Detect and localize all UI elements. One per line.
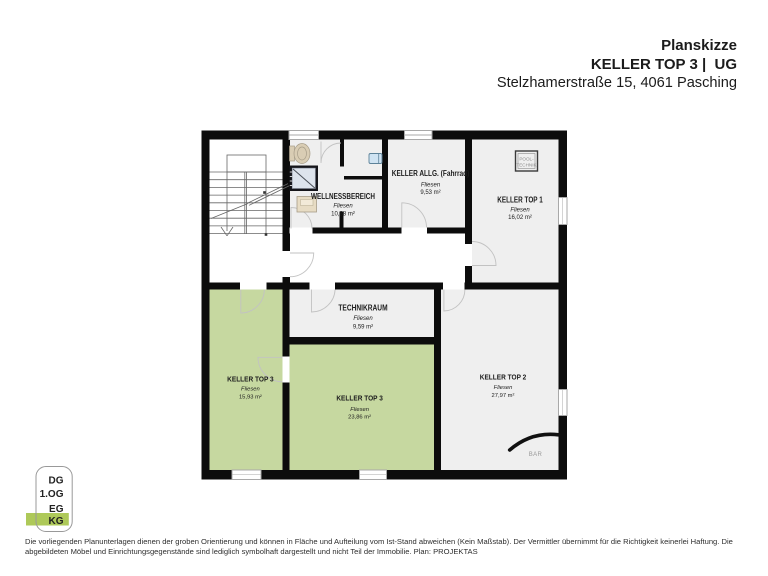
svg-text:Fliesen: Fliesen xyxy=(353,316,373,322)
svg-text:Fliesen: Fliesen xyxy=(421,183,441,189)
svg-text:27,97 m²: 27,97 m² xyxy=(492,393,515,399)
svg-text:DG: DG xyxy=(49,476,64,487)
svg-text:KELLER TOP 2: KELLER TOP 2 xyxy=(480,372,527,381)
svg-text:9,53 m²: 9,53 m² xyxy=(420,190,440,196)
svg-text:KELLER ALLG. (Fahrrad): KELLER ALLG. (Fahrrad) xyxy=(392,169,470,178)
svg-text:KELLER TOP 3: KELLER TOP 3 xyxy=(336,394,383,403)
svg-text:Fliesen: Fliesen xyxy=(494,385,513,391)
svg-text:KELLER TOP 1: KELLER TOP 1 xyxy=(497,195,543,204)
svg-text:Fliesen: Fliesen xyxy=(350,407,369,413)
svg-text:EG: EG xyxy=(49,504,64,515)
svg-text:1.OG: 1.OG xyxy=(40,489,64,500)
svg-text:Fliesen: Fliesen xyxy=(333,203,353,209)
svg-text:9,59 m²: 9,59 m² xyxy=(353,325,373,331)
svg-text:23,86 m²: 23,86 m² xyxy=(348,415,371,421)
svg-text:POOL-: POOL- xyxy=(519,157,534,162)
svg-text:16,02 m²: 16,02 m² xyxy=(508,215,532,221)
svg-text:10,88 m²: 10,88 m² xyxy=(331,212,355,218)
svg-text:TECHNIKRAUM: TECHNIKRAUM xyxy=(338,304,387,313)
svg-text:BAR: BAR xyxy=(529,452,543,458)
svg-text:KELLER TOP 3: KELLER TOP 3 xyxy=(227,374,274,383)
svg-text:TECHNIK: TECHNIK xyxy=(516,163,537,168)
svg-text:KG: KG xyxy=(49,516,64,527)
svg-text:WELLNESSBEREICH: WELLNESSBEREICH xyxy=(311,192,375,201)
svg-text:15,93 m²: 15,93 m² xyxy=(239,395,262,401)
svg-text:Fliesen: Fliesen xyxy=(241,387,260,393)
svg-text:Fliesen: Fliesen xyxy=(510,207,530,213)
